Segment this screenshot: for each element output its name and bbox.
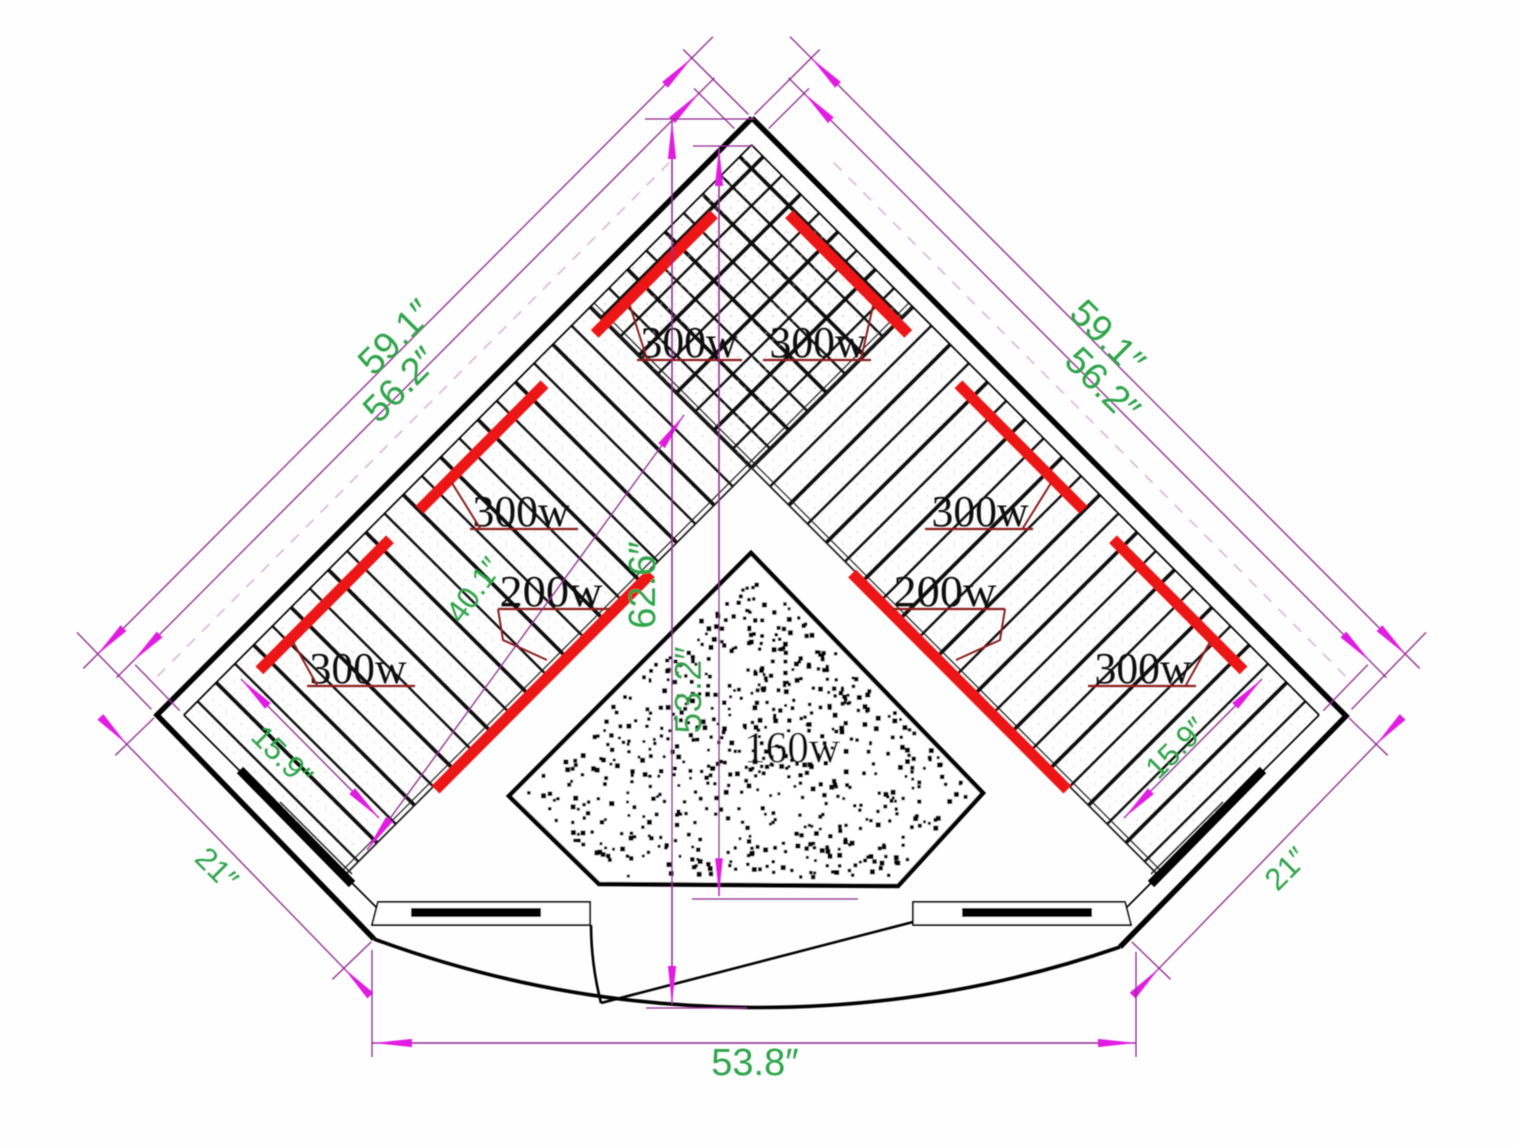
svg-text:62.6″: 62.6″ bbox=[622, 541, 664, 628]
svg-text:53.2″: 53.2″ bbox=[668, 646, 710, 733]
svg-text:53.8″: 53.8″ bbox=[711, 1042, 798, 1084]
svg-text:160w: 160w bbox=[744, 723, 840, 772]
